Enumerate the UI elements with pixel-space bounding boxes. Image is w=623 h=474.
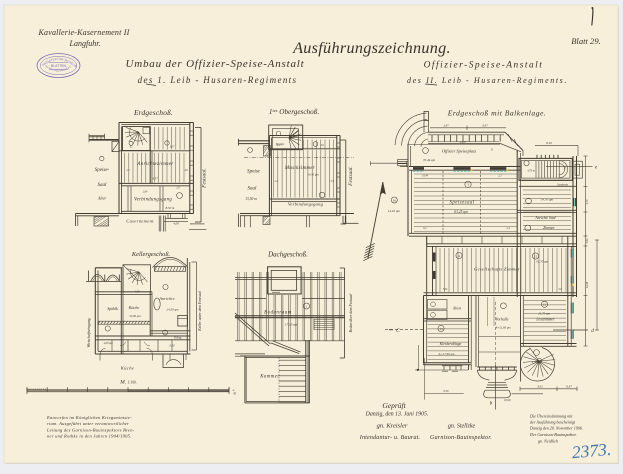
svg-text:Vorhalle: Vorhalle xyxy=(496,317,509,321)
svg-text:Anrichte: Anrichte xyxy=(158,296,174,301)
svg-text:des II. Leib - Husaren-Regime: des II. Leib - Husaren-Regiments. xyxy=(407,76,568,85)
svg-text:Geprüft: Geprüft xyxy=(382,401,406,410)
svg-text:Küche: Küche xyxy=(120,366,135,371)
svg-text:Gäng.: Gäng. xyxy=(174,336,183,340)
svg-text:C: C xyxy=(396,328,400,334)
svg-text:Der Garnison-Bauinspektor.: Der Garnison-Bauinspektor. xyxy=(529,432,577,437)
svg-text:Bodenraum: Bodenraum xyxy=(264,310,292,315)
svg-text:Langfuhr.: Langfuhr. xyxy=(69,39,101,48)
svg-text:Anrichtezimmer: Anrichtezimmer xyxy=(136,162,173,167)
svg-text:Entworfen im Königlichen Krieg: Entworfen im Königlichen Kriegsministe- xyxy=(46,415,132,420)
svg-text:4,79: 4,79 xyxy=(586,199,589,204)
svg-text:12: 12 xyxy=(543,303,547,307)
svg-text:E: E xyxy=(490,148,493,152)
svg-text:Intendantur- u. Baurat.: Intendantur- u. Baurat. xyxy=(359,435,420,441)
svg-text:Kammer: Kammer xyxy=(259,375,280,380)
svg-text:Saal: Saal xyxy=(98,183,108,188)
svg-text:Garderobe: Garderobe xyxy=(557,184,569,187)
svg-text:der Ausführung bescheinigt: der Ausführung bescheinigt xyxy=(530,420,576,425)
svg-text:gn. Kreisler: gn. Kreisler xyxy=(377,422,408,429)
svg-text:9,47: 9,47 xyxy=(482,124,488,128)
svg-text:Garnison-Bauinspektor.: Garnison-Bauinspektor. xyxy=(430,435,492,441)
svg-text:Anrichte Saal: Anrichte Saal xyxy=(534,216,555,220)
svg-text:Lesezimmer: Lesezimmer xyxy=(535,318,555,322)
svg-text:4,79 m: 4,79 m xyxy=(527,170,535,173)
svg-text:Festsaal.: Festsaal. xyxy=(202,168,208,189)
svg-text:gn. Stellzke: gn. Stellzke xyxy=(448,423,476,429)
svg-text:2,07: 2,07 xyxy=(170,146,175,149)
svg-text:Speise: Speise xyxy=(247,170,261,175)
svg-text:Wirtschaftseingang: Wirtschaftseingang xyxy=(87,318,91,347)
svg-text:7,04: 7,04 xyxy=(443,288,448,291)
svg-text:Gesellschafts Zimmer: Gesellschafts Zimmer xyxy=(474,266,520,271)
svg-text:Boden über dem Festsaal: Boden über dem Festsaal xyxy=(349,294,353,333)
svg-text:11: 11 xyxy=(457,254,461,258)
svg-text:u: u xyxy=(233,388,235,392)
svg-text:10,44: 10,44 xyxy=(422,175,429,178)
svg-text:Offizier Speiseplatz: Offizier Speiseplatz xyxy=(442,149,477,154)
svg-text:BLATTEN: BLATTEN xyxy=(51,64,67,68)
svg-text:Kavallerie-Kasernement II: Kavallerie-Kasernement II xyxy=(38,28,130,37)
svg-text:des 1. Leib - Husaren-Regimen: des 1. Leib - Husaren-Regiments xyxy=(138,75,298,85)
svg-text:Umbau der Offizier-Speise-Anst: Umbau der Offizier-Speise-Anstalt xyxy=(126,58,305,70)
svg-text:Kellergeschoß.: Kellergeschoß. xyxy=(131,251,171,258)
svg-text:m: m xyxy=(233,392,236,396)
svg-text:Dachgeschoß.: Dachgeschoß. xyxy=(267,251,308,259)
svg-text:ner und Rothke in den Jahren 1: ner und Rothke in den Jahren 1904/1905. xyxy=(47,434,131,439)
svg-text:2373.: 2373. xyxy=(571,439,612,462)
svg-text:Leitung des Garnison-Bauinspek: Leitung des Garnison-Bauinspektors Bren- xyxy=(46,427,135,432)
svg-text:Offizier-Speise-Anstalt: Offizier-Speise-Anstalt xyxy=(424,60,544,71)
svg-text:9,50: 9,50 xyxy=(444,390,449,393)
svg-text:rium. Ausgeführt unter verantw: rium. Ausgeführt unter verantwortlicher xyxy=(47,421,129,426)
svg-text:14,49: 14,49 xyxy=(585,281,589,288)
svg-text:Verbindungsgang: Verbindungsgang xyxy=(288,201,324,206)
svg-text:Kleiderablage: Kleiderablage xyxy=(439,342,462,346)
svg-text:14,37: 14,37 xyxy=(460,141,467,144)
svg-text:Zimmer: Zimmer xyxy=(543,226,555,230)
svg-text:Verbindungsgang: Verbindungsgang xyxy=(134,197,172,202)
svg-text:3: 3 xyxy=(467,183,469,187)
svg-text:gn. Neidlich: gn. Neidlich xyxy=(538,438,558,443)
svg-text:2,47: 2,47 xyxy=(443,124,449,128)
svg-text:Erdgeschoß.: Erdgeschoß. xyxy=(133,108,173,117)
svg-text:Keller unter dem Festsaal: Keller unter dem Festsaal xyxy=(198,291,202,332)
svg-text:Alter: Alter xyxy=(97,196,107,201)
svg-text:16: 16 xyxy=(393,198,397,202)
svg-text:Danzig, den 13. Juni 1905.: Danzig, den 13. Juni 1905. xyxy=(365,412,429,418)
svg-text:2,64: 2,64 xyxy=(143,191,148,194)
svg-text:Blatt 29.: Blatt 29. xyxy=(571,36,601,46)
svg-text:6,50: 6,50 xyxy=(170,345,175,348)
svg-text:Die Übereinstimmung mit: Die Übereinstimmung mit xyxy=(529,414,573,419)
svg-text:Abort: Abort xyxy=(452,307,462,311)
svg-text:Erdgeschoß mit Balkenlage.: Erdgeschoß mit Balkenlage. xyxy=(447,109,547,118)
svg-text:Casernement: Casernement xyxy=(126,219,154,224)
svg-text:Speise-: Speise- xyxy=(95,168,110,173)
svg-text:Festsaal.: Festsaal. xyxy=(348,166,354,187)
svg-text:Musikzimmer: Musikzimmer xyxy=(284,166,315,171)
svg-text:15: 15 xyxy=(534,254,538,258)
svg-text:Ausführungszeichnung.: Ausführungszeichnung. xyxy=(292,39,451,57)
svg-text:Küche: Küche xyxy=(128,305,140,310)
svg-text:Speisesaal: Speisesaal xyxy=(449,201,474,206)
svg-text:4,00 qm: 4,00 qm xyxy=(103,342,112,345)
svg-text:Saal: Saal xyxy=(248,187,258,192)
svg-text:Spühlk.: Spühlk. xyxy=(107,307,118,311)
svg-text:15: 15 xyxy=(439,327,443,331)
svg-text:5,60: 5,60 xyxy=(586,238,589,243)
svg-text:Danzig den 20. November 1906.: Danzig den 20. November 1906. xyxy=(529,426,583,431)
